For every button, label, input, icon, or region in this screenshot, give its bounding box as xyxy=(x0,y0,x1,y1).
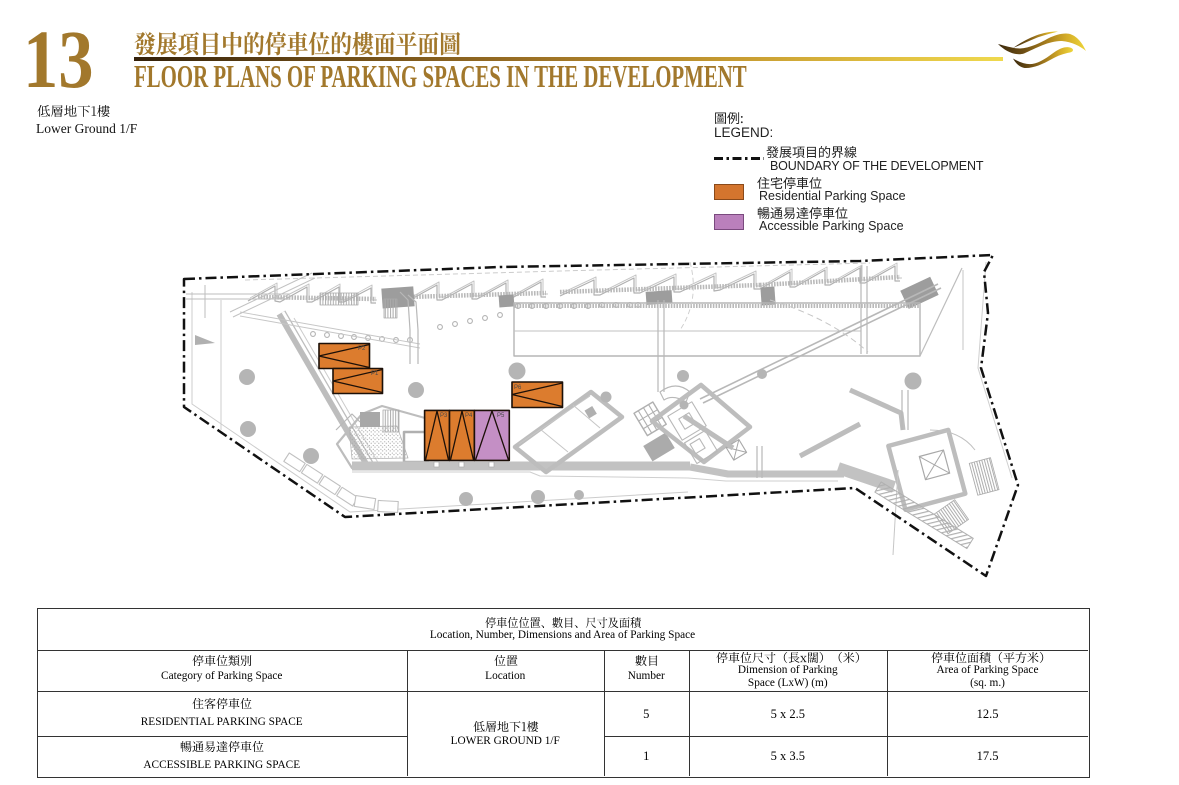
svg-text:P1: P1 xyxy=(371,371,379,377)
svg-text:P3: P3 xyxy=(440,413,448,419)
svg-text:P6: P6 xyxy=(514,385,522,391)
svg-text:P5: P5 xyxy=(497,413,505,419)
svg-text:P4: P4 xyxy=(465,413,473,419)
svg-text:P2: P2 xyxy=(358,346,366,352)
